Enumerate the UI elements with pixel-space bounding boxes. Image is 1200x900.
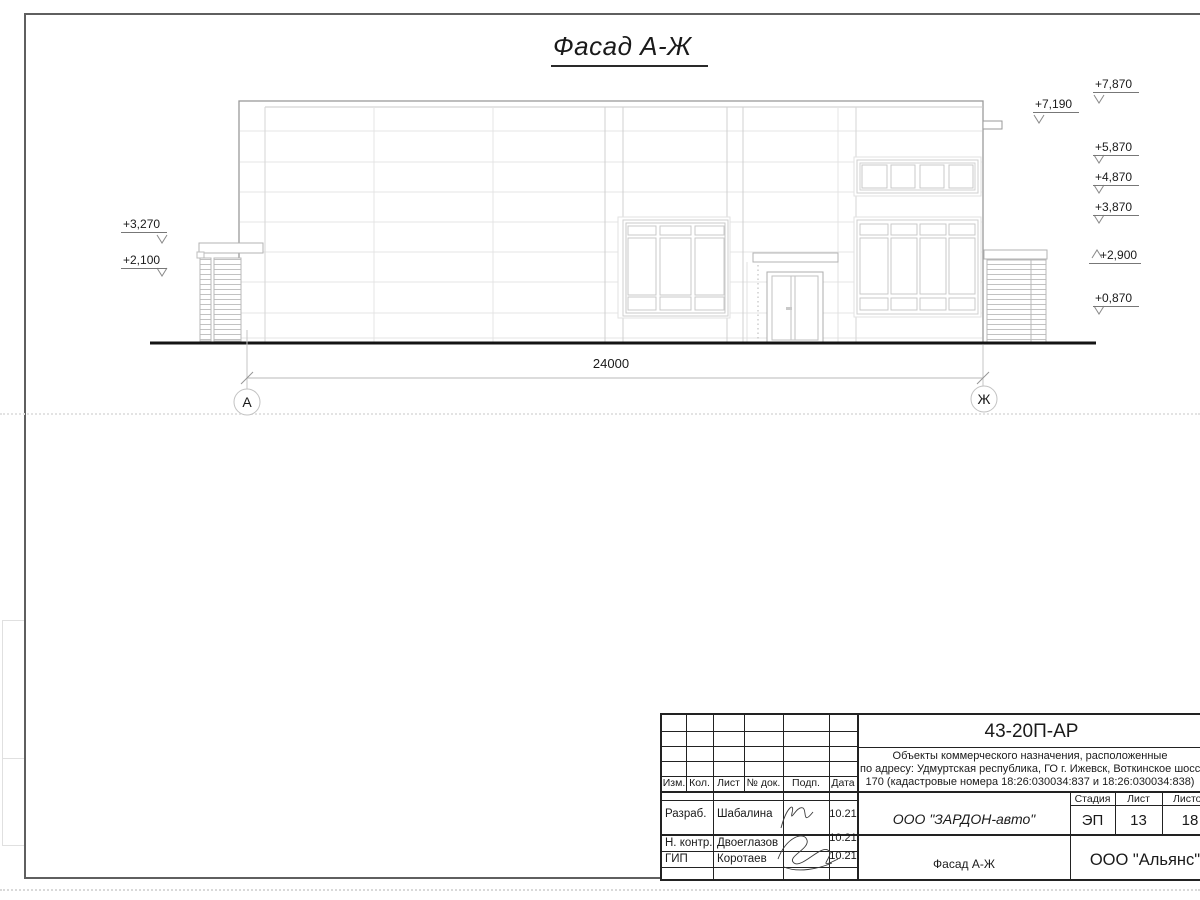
elevation-arrow-down [1094, 185, 1104, 193]
elevation-mark: +3,870 [1093, 201, 1139, 216]
elevation-mark: +3,270 [121, 218, 167, 233]
rev-header-izm: Изм. [662, 777, 686, 789]
right-louver [984, 250, 1047, 342]
elevation-arrow-down [1094, 215, 1104, 223]
right-band-window [854, 157, 981, 196]
title-block: Изм. Кол. Лист № док. Подп. Дата Разраб.… [660, 713, 1200, 881]
project-description-line: 170 (кадастровые номера 18:26:030034:837… [860, 776, 1200, 789]
role-name: Коротаев [717, 853, 767, 865]
signature [777, 800, 825, 832]
drawing-sheet: { "drawing": { "title": "Фасад А-Ж", "di… [0, 0, 1200, 900]
right-window [854, 217, 981, 317]
elevation-arrow-down [1034, 115, 1044, 123]
titleblock-line [662, 761, 857, 762]
sheets-label: Листов [1162, 793, 1200, 805]
dimension-label: 24000 [585, 356, 637, 371]
stage-label: Стадия [1070, 793, 1115, 805]
middle-window [618, 217, 730, 318]
signature [774, 829, 848, 875]
project-description-line: Объекты коммерческого назначения, распол… [860, 750, 1200, 763]
role-name: Шабалина [717, 808, 773, 820]
project-description-line: по адресу: Удмуртская республика, ГО г. … [860, 763, 1200, 776]
org-name: ООО "Альянс" [1070, 851, 1200, 870]
elevation-arrow-down [1094, 306, 1104, 314]
titleblock-line [662, 800, 857, 801]
axis-bubbles [234, 386, 997, 415]
role-label: ГИП [665, 853, 688, 865]
elevation-arrow-down [157, 268, 167, 276]
titleblock-line [713, 715, 714, 879]
titleblock-line [662, 834, 1200, 836]
titleblock-line [662, 746, 857, 747]
elevation-arrow-down [157, 235, 167, 243]
rev-header-list: Лист [713, 777, 744, 789]
rev-header-kol: Кол. [686, 777, 713, 789]
sheet-number: 13 [1115, 812, 1162, 829]
axis-bubble-zh: Ж [971, 391, 997, 407]
titleblock-line [1070, 805, 1200, 806]
elevation-mark: +2,100 [121, 254, 167, 269]
sheet-name: Фасад А-Ж [858, 857, 1070, 871]
rev-header-doc: № док. [744, 777, 783, 789]
rev-header-podp: Подп. [783, 777, 829, 789]
titleblock-line [857, 747, 1200, 748]
elevation-mark: +7,190 [1033, 98, 1079, 113]
sheet-label: Лист [1115, 793, 1162, 805]
elevation-mark: +0,870 [1093, 292, 1139, 307]
role-date: 10.21 [829, 808, 857, 820]
elevation-mark: +5,870 [1093, 141, 1139, 156]
rev-header-data: Дата [829, 777, 857, 789]
role-label: Н. контр. [665, 837, 712, 849]
elevation-mark: +2,900 [1089, 249, 1141, 264]
elevation-mark: +4,870 [1093, 171, 1139, 186]
stage-value: ЭП [1070, 812, 1115, 829]
sheets-total: 18 [1162, 812, 1200, 829]
elevation-arrow-down [1094, 155, 1104, 163]
elevation-arrow-down [1094, 95, 1104, 103]
company-name: ООО "ЗАРДОН-авто" [858, 811, 1070, 827]
role-label: Разраб. [665, 808, 706, 820]
doc-number: 43-20П-АР [858, 721, 1200, 743]
role-name: Двоеглазов [717, 837, 778, 849]
titleblock-line [662, 731, 857, 732]
elevation-mark: +7,870 [1093, 78, 1139, 93]
axis-bubble-a: А [234, 394, 260, 410]
